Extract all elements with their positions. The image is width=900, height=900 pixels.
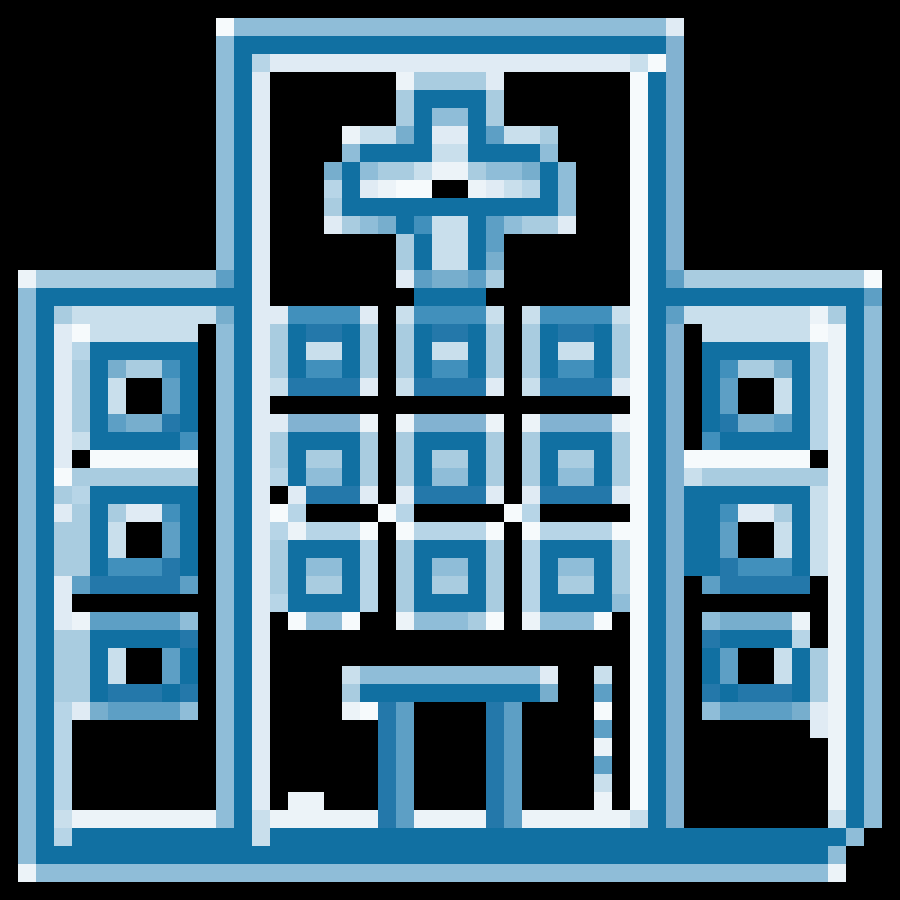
pixel-art-stage: Pixel art hospital building icon [0, 0, 900, 900]
hospital-icon [0, 0, 900, 900]
